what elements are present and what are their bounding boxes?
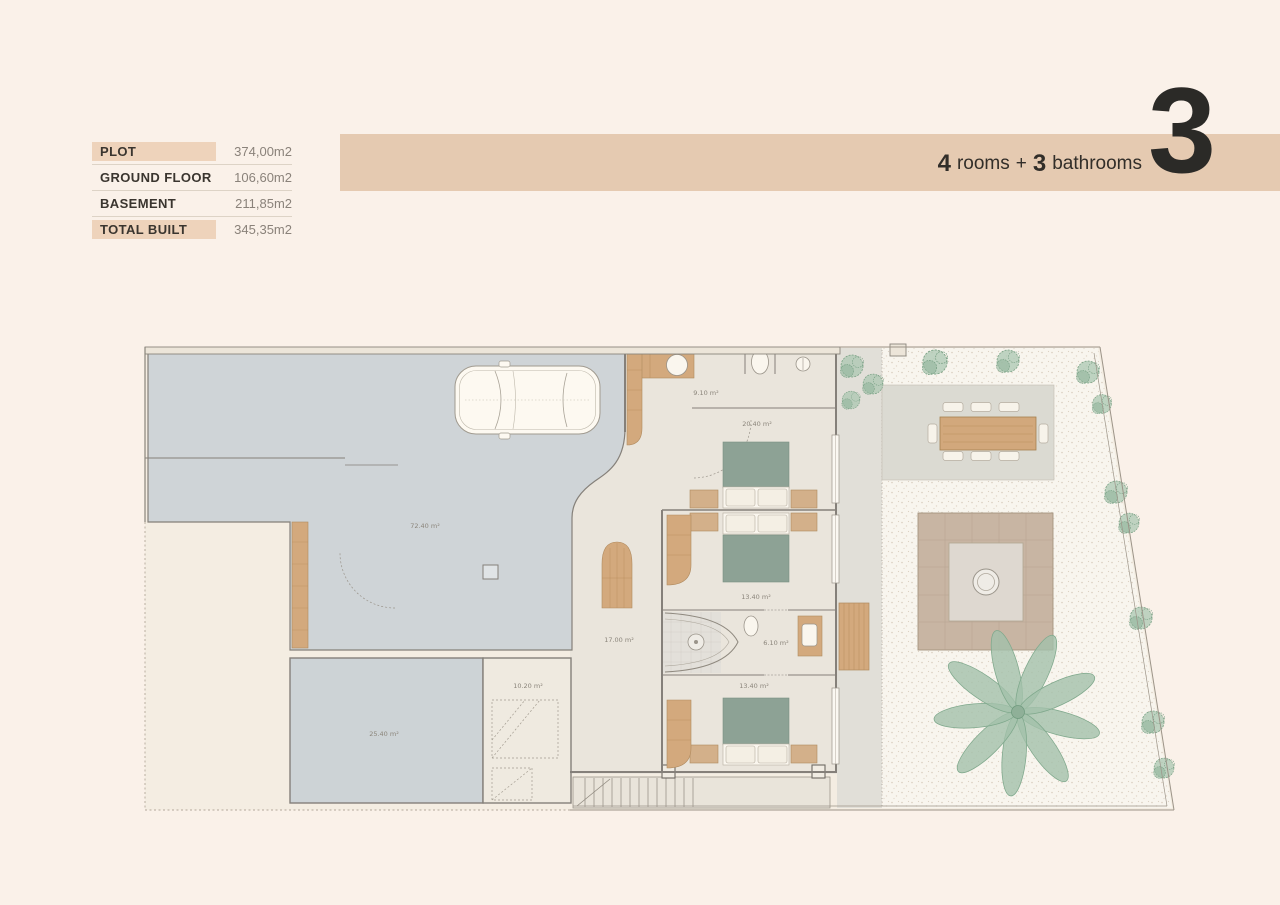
stat-row-plot: PLOT 374,00m2 (92, 139, 292, 165)
floor-plan: 72.40 m² 9.10 m² 20.40 m² 13.40 m² 6.10 … (140, 340, 1180, 820)
fire-pit (973, 569, 999, 595)
garden-walkway (837, 348, 882, 808)
stat-value: 106,60m2 (216, 170, 292, 185)
car-icon (455, 361, 600, 439)
room-area-label: 10.20 m² (513, 682, 543, 690)
room-area-label: 72.40 m² (410, 522, 440, 530)
wood-deck (839, 603, 869, 670)
sink-1 (667, 355, 688, 376)
stat-value: 374,00m2 (216, 144, 292, 159)
room-area-label: 13.40 m² (739, 682, 769, 690)
stat-label: PLOT (92, 142, 216, 161)
exterior-stairs (573, 777, 830, 808)
room-area-label: 17.00 m² (604, 636, 634, 644)
stat-value: 345,35m2 (216, 222, 292, 237)
stat-label: TOTAL BUILT (92, 220, 216, 239)
rooms-word: rooms (957, 153, 1010, 175)
room-area-label: 25.40 m² (369, 730, 399, 738)
sink-2 (802, 624, 817, 646)
dining-table (940, 417, 1036, 450)
rooms-count: 4 (938, 150, 951, 178)
stat-label: BASEMENT (92, 194, 216, 213)
sunken-lounge (918, 513, 1053, 650)
page: { "stats": { "rows": [ {"label": "PLOT",… (0, 0, 1280, 905)
room-area-label: 20.40 m² (742, 420, 772, 428)
stat-label: GROUND FLOOR (92, 168, 216, 187)
rooms-bathrooms-text: 4 rooms + 3 bathrooms (938, 146, 1142, 182)
stat-row-total-built: TOTAL BUILT 345,35m2 (92, 217, 292, 242)
room-area-label: 6.10 m² (763, 639, 789, 647)
plan-number: 3 (1148, 76, 1216, 186)
garage-cabinet (292, 522, 308, 648)
toilet-2 (744, 616, 758, 636)
garage-column (483, 565, 498, 579)
stats-table: PLOT 374,00m2 GROUND FLOOR 106,60m2 BASE… (92, 139, 292, 242)
room-area-label: 13.40 m² (741, 593, 771, 601)
bathrooms-count: 3 (1033, 150, 1046, 178)
stat-row-ground-floor: GROUND FLOOR 106,60m2 (92, 165, 292, 191)
stat-row-basement: BASEMENT 211,85m2 (92, 191, 292, 217)
room-area-label: 9.10 m² (693, 389, 719, 397)
dining-patio (882, 385, 1054, 480)
stat-value: 211,85m2 (216, 196, 292, 211)
bathrooms-word: bathrooms (1052, 153, 1142, 175)
plus-sign: + (1016, 153, 1027, 175)
